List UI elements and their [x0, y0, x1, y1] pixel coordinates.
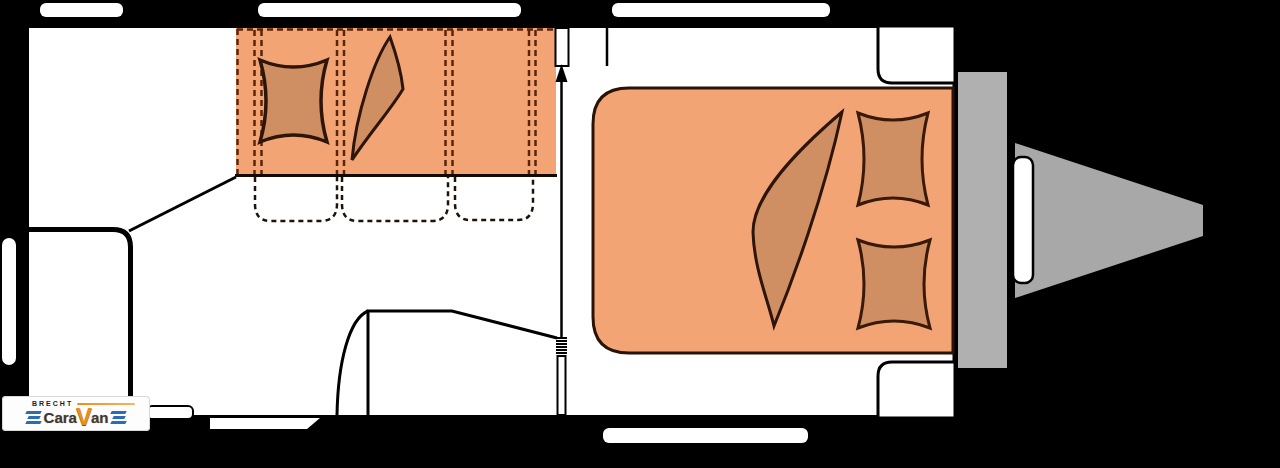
floorplan-drawing	[0, 0, 1280, 468]
partition-door-slider	[558, 356, 566, 415]
bed-pillow-top	[858, 113, 928, 205]
service-hatch	[147, 406, 193, 419]
window-top-dinette	[258, 3, 521, 17]
logo-stripes-left-icon	[26, 411, 41, 424]
brand-logo: BRECHT Cara V an	[2, 396, 150, 431]
dealer-name: BRECHT	[32, 400, 73, 408]
logo-wordmark: Cara V an	[2, 408, 150, 426]
dinette-pillow	[260, 60, 327, 142]
wordmark-part3: an	[91, 410, 109, 425]
jockey-wheel-handle	[1013, 157, 1033, 283]
corner-cabinet-top	[878, 26, 955, 83]
window-top-bed	[612, 3, 830, 17]
drawbar-hitch	[1015, 143, 1203, 298]
window-top-rear	[40, 3, 123, 17]
logo-stripes-right-icon	[111, 411, 126, 424]
front-wall-trim	[958, 72, 1007, 368]
entry-door-step	[210, 418, 320, 429]
corner-cabinet-bottom	[878, 362, 955, 418]
caravan-floorplan-scene: BRECHT Cara V an	[0, 0, 1280, 468]
window-bottom-bed	[603, 428, 808, 443]
partition-wall-stub	[556, 28, 569, 66]
window-rear-wall	[2, 238, 16, 365]
wordmark-part2: V	[76, 408, 92, 426]
bed-pillow-bottom	[858, 240, 930, 328]
wordmark-part1: Cara	[44, 410, 77, 425]
